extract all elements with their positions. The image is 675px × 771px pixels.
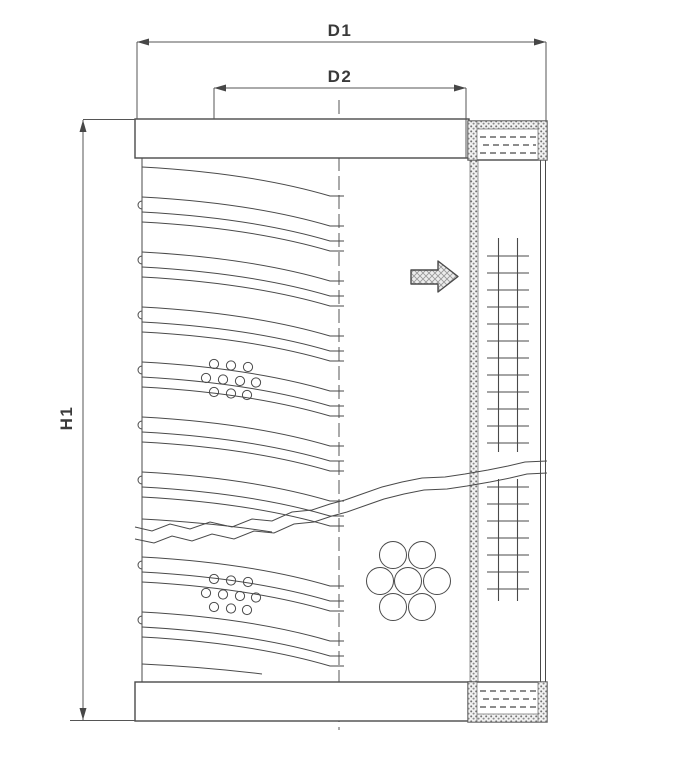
dimension-h1: H1 [57,120,135,721]
core-tube [468,121,547,722]
drainage-holes [367,542,451,621]
break-lines [135,461,547,543]
technical-drawing-canvas: D1 D2 H1 [0,0,675,771]
flow-direction-arrow-icon [411,261,458,292]
h1-label: H1 [57,406,76,431]
perforation-cluster-upper [201,359,260,399]
top-end-cap [135,119,469,158]
core-mesh [487,238,529,601]
bottom-end-cap [135,682,469,721]
d1-label: D1 [328,21,353,40]
pleated-media [138,158,344,682]
d2-label: D2 [328,67,353,86]
filter-element-drawing: D1 D2 H1 [0,0,675,771]
